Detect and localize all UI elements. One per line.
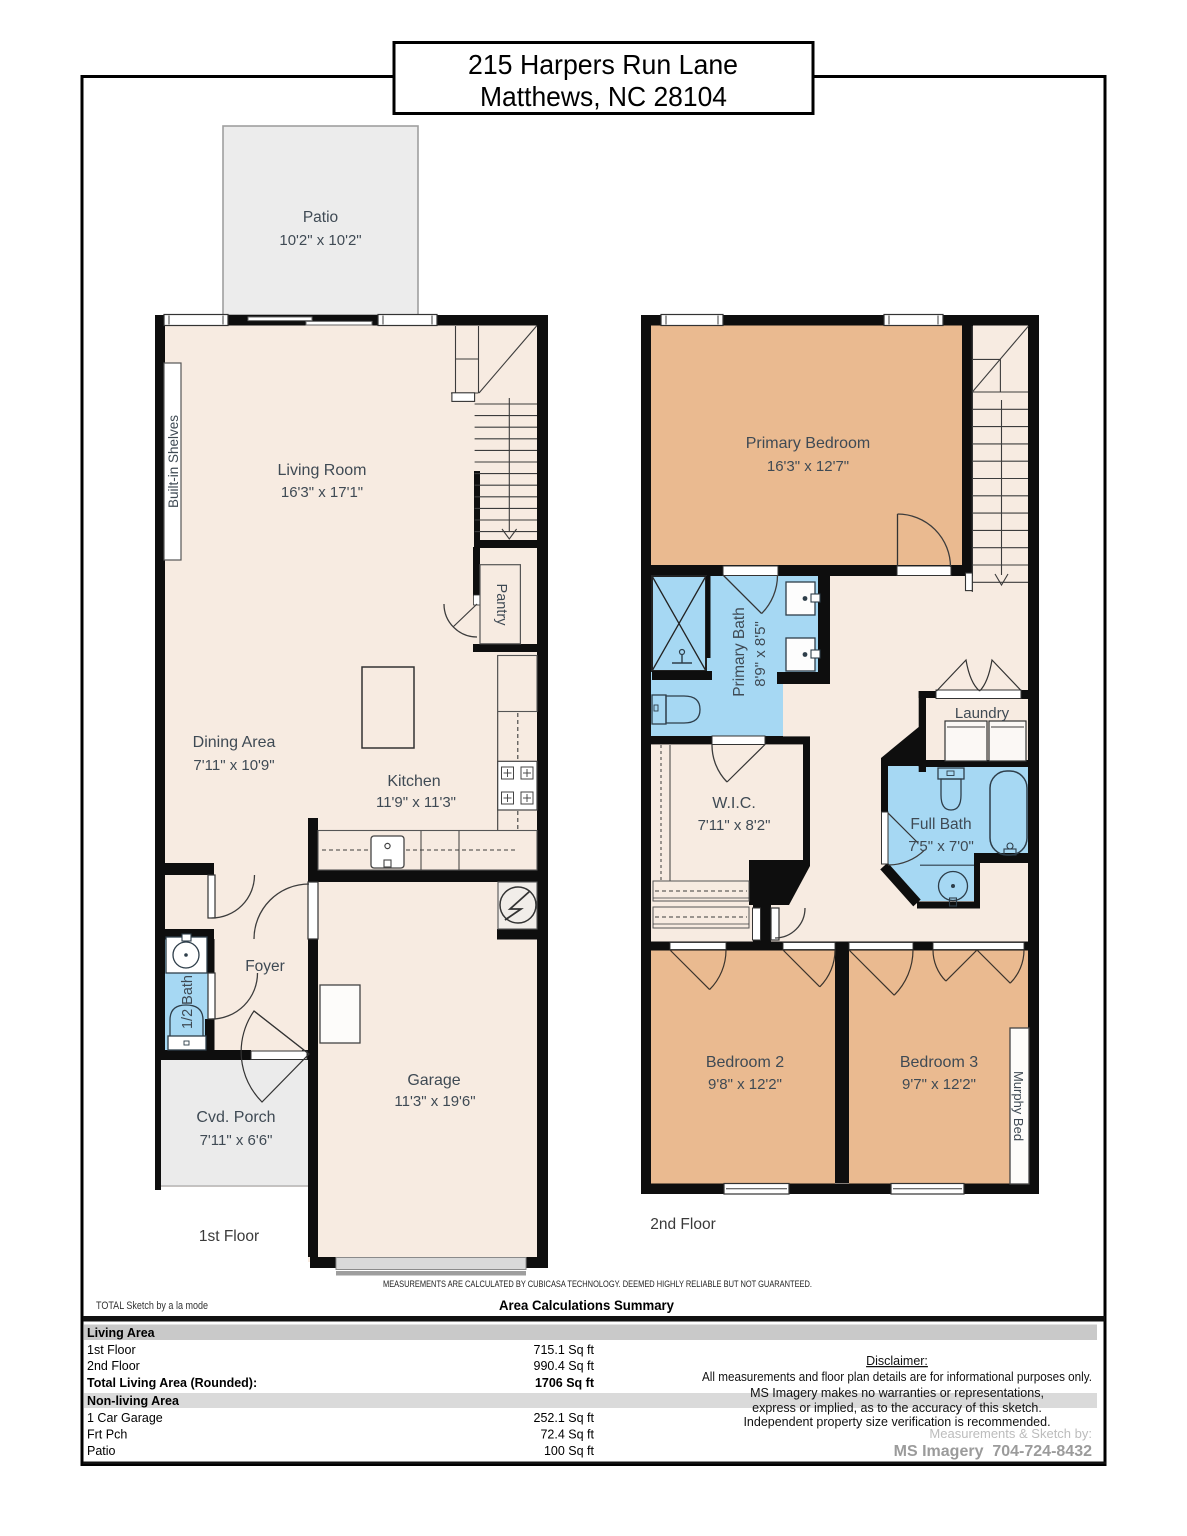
svg-text:TOTAL Sketch by a la mode: TOTAL Sketch by a la mode <box>96 1300 208 1312</box>
svg-text:Area Calculations Summary: Area Calculations Summary <box>499 1298 674 1313</box>
svg-text:Measurements & Sketch by:: Measurements & Sketch by: <box>929 1426 1092 1441</box>
svg-text:7'11" x 10'9": 7'11" x 10'9" <box>193 757 274 774</box>
svg-text:W.I.C.: W.I.C. <box>712 795 756 812</box>
svg-text:16'3" x 12'7": 16'3" x 12'7" <box>767 458 849 475</box>
svg-text:Primary Bedroom: Primary Bedroom <box>746 435 870 452</box>
svg-text:9'8" x 12'2": 9'8" x 12'2" <box>708 1076 782 1093</box>
svg-text:Bedroom 2: Bedroom 2 <box>706 1054 784 1071</box>
svg-text:7'11" x 6'6": 7'11" x 6'6" <box>200 1132 273 1149</box>
svg-text:Bedroom 3: Bedroom 3 <box>900 1054 978 1071</box>
svg-text:1706 Sq ft: 1706 Sq ft <box>535 1376 595 1390</box>
svg-text:Matthews, NC 28104: Matthews, NC 28104 <box>480 81 727 112</box>
svg-text:All measurements and floor pla: All measurements and floor plan details … <box>702 1370 1092 1384</box>
svg-text:Primary Bath: Primary Bath <box>731 607 748 697</box>
svg-text:252.1 Sq ft: 252.1 Sq ft <box>534 1411 595 1425</box>
svg-text:Kitchen: Kitchen <box>387 773 440 790</box>
svg-text:Total Living Area (Rounded):: Total Living Area (Rounded): <box>87 1376 257 1390</box>
svg-text:express or implied, as to the: express or implied, as to the accuracy o… <box>752 1401 1042 1415</box>
svg-text:1/2 Bath: 1/2 Bath <box>180 975 196 1029</box>
svg-text:Living Room: Living Room <box>278 462 367 479</box>
svg-text:100 Sq ft: 100 Sq ft <box>544 1444 595 1458</box>
svg-text:1st Floor: 1st Floor <box>87 1343 136 1357</box>
svg-text:MEASUREMENTS ARE CALCULATED BY: MEASUREMENTS ARE CALCULATED BY CUBICASA … <box>383 1279 812 1289</box>
svg-text:715.1 Sq ft: 715.1 Sq ft <box>534 1343 595 1357</box>
svg-text:MS Imagery makes no warranties: MS Imagery makes no warranties or repres… <box>750 1386 1044 1400</box>
svg-text:9'7" x 12'2": 9'7" x 12'2" <box>902 1076 976 1093</box>
svg-text:11'3" x 19'6": 11'3" x 19'6" <box>394 1093 475 1110</box>
svg-text:11'9" x 11'3": 11'9" x 11'3" <box>376 794 456 811</box>
svg-text:16'3" x 17'1": 16'3" x 17'1" <box>281 484 363 501</box>
svg-text:Cvd. Porch: Cvd. Porch <box>196 1109 275 1126</box>
svg-text:Disclaimer:: Disclaimer: <box>866 1354 928 1368</box>
svg-text:2nd Floor: 2nd Floor <box>650 1216 715 1233</box>
svg-text:8'9" x 8'5": 8'9" x 8'5" <box>752 621 769 687</box>
svg-text:Living Area: Living Area <box>87 1326 156 1340</box>
svg-text:MS Imagery 704-724-8432: MS Imagery 704-724-8432 <box>894 1443 1092 1460</box>
svg-text:Murphy Bed: Murphy Bed <box>1011 1071 1026 1141</box>
svg-text:72.4 Sq ft: 72.4 Sq ft <box>540 1428 594 1442</box>
svg-text:7'5" x 7'0": 7'5" x 7'0" <box>908 838 974 855</box>
svg-text:Garage: Garage <box>407 1072 460 1089</box>
svg-text:1st Floor: 1st Floor <box>199 1228 259 1245</box>
svg-text:215 Harpers Run Lane: 215 Harpers Run Lane <box>468 49 738 80</box>
svg-text:Built-in Shelves: Built-in Shelves <box>166 415 181 508</box>
svg-text:Dining Area: Dining Area <box>193 734 276 751</box>
svg-text:1 Car Garage: 1 Car Garage <box>87 1411 163 1425</box>
svg-text:Laundry: Laundry <box>955 705 1010 722</box>
svg-text:Non-living Area: Non-living Area <box>87 1394 180 1408</box>
svg-text:Patio: Patio <box>303 209 338 226</box>
svg-text:990.4 Sq ft: 990.4 Sq ft <box>534 1359 595 1373</box>
svg-text:2nd Floor: 2nd Floor <box>87 1359 140 1373</box>
svg-text:Foyer: Foyer <box>245 958 285 975</box>
svg-text:Pantry: Pantry <box>493 584 509 627</box>
svg-text:Frt Pch: Frt Pch <box>87 1428 127 1442</box>
svg-text:Full Bath: Full Bath <box>910 816 971 833</box>
svg-text:10'2" x 10'2": 10'2" x 10'2" <box>279 232 361 249</box>
svg-text:Patio: Patio <box>87 1444 116 1458</box>
svg-text:7'11" x 8'2": 7'11" x 8'2" <box>698 817 771 834</box>
